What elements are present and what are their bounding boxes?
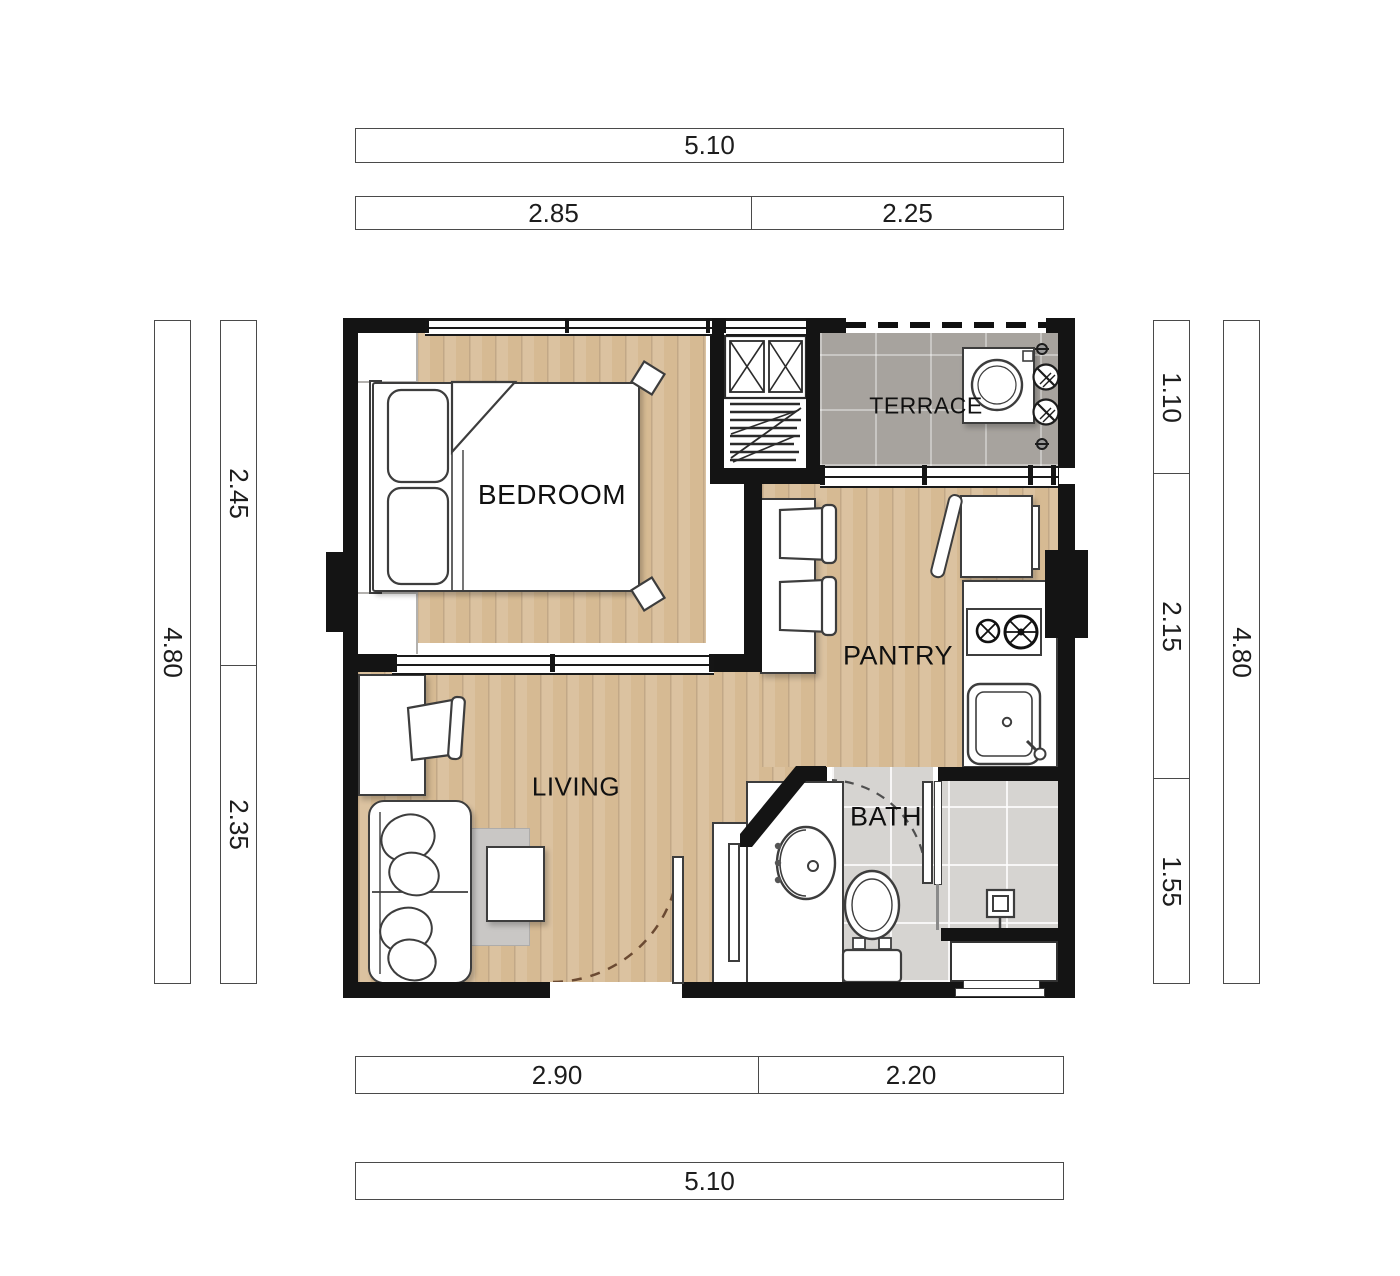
bath-label: BATH	[850, 802, 922, 833]
entry-door-opening	[550, 982, 682, 998]
wall-column-left	[326, 552, 348, 632]
shower-screen	[934, 781, 942, 885]
wardrobe-top-window	[726, 319, 806, 336]
dim-right-seg-1: 1.10	[1156, 372, 1187, 423]
basin-counter	[746, 781, 844, 984]
dim-bottom-overall: 5.10	[356, 1163, 1063, 1199]
living-label: LIVING	[532, 772, 620, 803]
wall-wardrobe-left	[710, 333, 724, 470]
tv-screen	[728, 843, 740, 962]
right-wall-jamb	[1059, 468, 1075, 484]
window-mullion	[550, 654, 555, 672]
bath-door-jamb	[827, 767, 832, 781]
window-mullion	[922, 465, 927, 485]
platform-divider	[358, 592, 417, 594]
window-mullion	[565, 318, 569, 333]
wall-partition-left	[343, 654, 392, 672]
dim-bottom-seg-2: 2.20	[758, 1057, 1063, 1093]
vent-grille	[955, 988, 1045, 997]
wall-partition-right	[714, 654, 762, 672]
window-mullion	[820, 465, 825, 485]
window-mullion	[706, 318, 710, 333]
wall-terrace-left	[806, 333, 820, 468]
stove	[966, 608, 1042, 656]
dim-left-overall: 4.80	[157, 627, 188, 678]
floor-plan-canvas: 5.10 2.85 2.25 2.90 2.20 5.10 4.80 2.45 …	[0, 0, 1400, 1276]
wall-column-right	[1045, 550, 1088, 638]
dim-bar-left-overall: 4.80	[154, 320, 191, 984]
wall-shower-bottom	[941, 928, 1058, 941]
ac-ledge	[950, 941, 1058, 982]
terrace-railing-dashed	[846, 322, 1046, 328]
window-mullion	[392, 654, 397, 672]
living-desk	[358, 674, 426, 796]
terrace-sliding-door	[820, 466, 1058, 488]
shower-screen-rail	[936, 884, 939, 930]
dim-top-seg-1: 2.85	[356, 197, 751, 229]
dim-bar-top-overall: 5.10	[355, 128, 1064, 163]
wall-wardrobe-bottom	[710, 468, 820, 484]
window-mullion	[1028, 465, 1033, 485]
wardrobe-nook	[724, 333, 806, 468]
bath-door-leaf	[922, 781, 933, 884]
pantry-desk	[960, 495, 1033, 578]
pantry-label: PANTRY	[843, 641, 953, 672]
dim-bar-top-segments: 2.85 2.25	[355, 196, 1064, 230]
terrace-label: TERRACE	[869, 393, 982, 420]
dim-left-seg-1: 2.45	[223, 468, 254, 519]
pantry-desk-side	[1031, 505, 1040, 570]
dim-bar-left-segments: 2.45 2.35	[220, 320, 257, 984]
window-mullion	[425, 318, 429, 333]
dim-bar-right-overall: 4.80	[1223, 320, 1260, 984]
dim-right-seg-3: 1.55	[1156, 856, 1187, 907]
entry-door-leaf	[672, 856, 684, 984]
window-mullion	[1051, 465, 1056, 485]
dim-bar-bottom-overall: 5.10	[355, 1162, 1064, 1200]
sofa	[368, 800, 472, 984]
dim-bar-bottom-segments: 2.90 2.20	[355, 1056, 1064, 1094]
dim-top-seg-2: 2.25	[751, 197, 1063, 229]
dim-left-seg-2: 2.35	[223, 799, 254, 850]
wall-bath-top-left	[806, 767, 827, 781]
dim-top-overall: 5.10	[356, 129, 1063, 162]
wall-bedroom-pantry	[744, 484, 762, 656]
dim-bottom-seg-1: 2.90	[356, 1057, 758, 1093]
bedroom-label: BEDROOM	[478, 479, 626, 511]
dim-right-seg-2: 2.15	[1156, 601, 1187, 652]
dim-right-overall: 4.80	[1226, 627, 1257, 678]
window-mullion	[709, 654, 714, 672]
dining-table	[760, 498, 816, 674]
dim-bar-right-segments: 1.10 2.15 1.55	[1153, 320, 1190, 984]
bath-door-jamb	[933, 767, 938, 781]
coffee-table	[486, 846, 545, 922]
wall-right	[1058, 318, 1075, 998]
wall-bath-top-right	[938, 767, 1058, 781]
